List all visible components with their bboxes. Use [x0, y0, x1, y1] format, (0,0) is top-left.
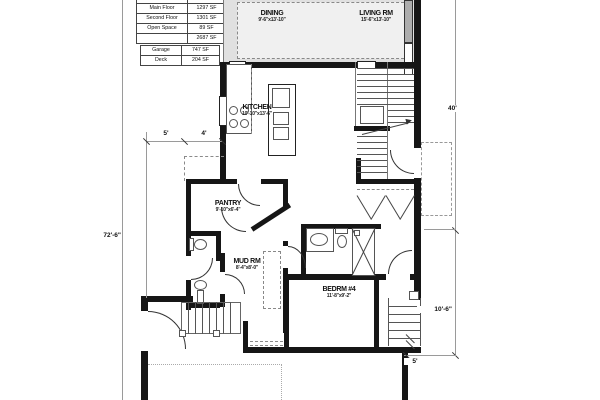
stair-direction-arrow — [405, 117, 412, 124]
room-size: 9'-6"x13'-10" — [244, 18, 300, 24]
cell-area: 204 SF — [182, 56, 220, 66]
table-row: Second Floor1301 SF — [137, 14, 226, 24]
stair-tread — [357, 136, 387, 137]
deck-step — [388, 338, 421, 339]
door-opening — [141, 311, 148, 351]
bifold-door-panel — [386, 195, 401, 220]
room-label-dining: DINING 9'-6"x13'-10" — [244, 10, 300, 23]
mudroom-bench-dashed — [263, 251, 281, 309]
door-swing — [221, 207, 246, 232]
cooktop-burner — [240, 119, 249, 128]
stair-tread — [357, 166, 387, 167]
porch-outline-dotted — [281, 364, 282, 400]
floor-above-dashed — [184, 156, 185, 181]
stair-tread — [357, 148, 387, 149]
angled-wall — [251, 203, 291, 232]
stair-tread — [223, 302, 224, 334]
room-label-bed4: BEDRM #4 11'-8"x9'-2" — [306, 286, 372, 299]
dimension-label-upper-right: 40' — [447, 105, 458, 112]
wall — [414, 0, 421, 148]
extension-line — [146, 132, 147, 298]
stair-landing — [360, 106, 384, 124]
wall — [186, 231, 220, 236]
stair-tread — [188, 302, 189, 334]
shower-head — [354, 230, 360, 236]
dimension-label-deck-width: 5' — [404, 358, 426, 365]
newel-post — [179, 330, 186, 337]
cooktop-burner — [229, 119, 238, 128]
toilet-tank — [335, 228, 348, 234]
wall — [356, 179, 421, 184]
deck-dashed-outline — [421, 142, 452, 216]
stair-tread — [357, 142, 387, 143]
room-size: 10'-10"x13'-6" — [230, 112, 284, 118]
extension-line — [424, 229, 456, 230]
cell-name: Main Floor — [137, 4, 188, 14]
overhead-header-dashed — [250, 345, 283, 346]
toilet-bowl — [194, 239, 207, 250]
stair-tread — [357, 92, 414, 93]
floor-above-dashed — [184, 156, 224, 157]
table-row: Garage747 SF — [141, 46, 220, 56]
dimension-label-offset-b: 4' — [195, 130, 213, 137]
island-sink-basin — [273, 127, 289, 140]
stair-tread — [357, 160, 387, 161]
cell-area: 89 SF — [188, 24, 226, 34]
pedestal-sink — [194, 280, 207, 290]
stair-tread — [195, 302, 196, 334]
room-label-kitchen: KITCHEN 10'-10"x13'-6" — [230, 104, 284, 117]
door-swing — [390, 150, 414, 174]
dimension-label-lower-right: 10'-6" — [417, 306, 453, 313]
bifold-door-panel — [400, 195, 415, 220]
cell-area: 1301 SF — [188, 14, 226, 24]
stair-tread — [230, 302, 231, 334]
floor-plan-sheet: NAME AREA Main Floor1297 SF Second Floor… — [0, 0, 600, 400]
stair-tread — [357, 74, 414, 75]
area-table-secondary: Garage747 SF Deck204 SF — [140, 45, 220, 66]
stair-edge-line — [355, 62, 356, 126]
lower-stairs-frame — [181, 302, 241, 334]
wall-niche — [404, 43, 413, 75]
toilet-bowl — [337, 235, 347, 248]
wall — [356, 158, 361, 184]
bifold-door-panel — [357, 195, 372, 220]
wall — [243, 347, 421, 353]
stair-tread — [388, 110, 414, 111]
wall — [284, 274, 289, 353]
cell-area: 2687 SF — [188, 34, 226, 44]
wall — [414, 178, 421, 300]
cell-name: Second Floor — [137, 14, 188, 24]
cell-name — [137, 34, 188, 44]
wall — [243, 321, 248, 347]
cell-area: 747 SF — [182, 46, 220, 56]
dimension-line-left — [122, 0, 123, 400]
deck-step — [388, 330, 421, 331]
deck-left-edge — [223, 0, 224, 62]
stair-tread — [357, 172, 387, 173]
deck-step — [388, 322, 421, 323]
cell-name: Garage — [141, 46, 182, 56]
stair-tread — [357, 154, 387, 155]
closet-shelf-dashed — [357, 189, 414, 190]
upper-cabinet-dashed — [251, 64, 252, 134]
room-label-living: LIVING RM 15'-6"x13'-10" — [346, 10, 406, 23]
porch-outline-dotted — [148, 364, 282, 365]
door-swing — [191, 258, 213, 280]
area-table-main: NAME AREA Main Floor1297 SF Second Floor… — [136, 0, 226, 44]
cell-area: 1297 SF — [188, 4, 226, 14]
stair-tread — [357, 68, 414, 69]
deck-step — [388, 314, 421, 315]
vanity-sink — [310, 233, 328, 246]
cell-name: Deck — [141, 56, 182, 66]
stair-tread — [357, 86, 414, 87]
room-size: 15'-6"x13'-10" — [346, 18, 406, 24]
stair-tread — [209, 302, 210, 334]
newel-post — [213, 330, 220, 337]
deck-post — [409, 291, 419, 300]
table-row: Open Space89 SF — [137, 24, 226, 34]
stair-tread — [357, 104, 414, 105]
overhead-header-dashed — [250, 341, 283, 342]
table-row: 2687 SF — [137, 34, 226, 44]
door-opening — [386, 274, 410, 280]
door-swing — [225, 274, 245, 294]
stair-tread — [202, 302, 203, 334]
window-glazing-band — [404, 0, 413, 43]
cell-name: Open Space — [137, 24, 188, 34]
door-swing — [388, 250, 412, 274]
table-row: Main Floor1297 SF — [137, 4, 226, 14]
bifold-door-panel — [371, 195, 386, 220]
dimension-label-overall-height: 72'-6" — [92, 232, 122, 239]
stair-tread — [357, 98, 414, 99]
table-row: Deck204 SF — [141, 56, 220, 66]
wall — [374, 274, 379, 353]
dimension-label-offset-a: 5' — [157, 130, 175, 137]
dimension-line-right — [455, 0, 456, 356]
dimension-line-bottom — [404, 355, 456, 356]
room-size: 11'-8"x9'-2" — [306, 294, 372, 300]
stair-tread — [357, 80, 414, 81]
